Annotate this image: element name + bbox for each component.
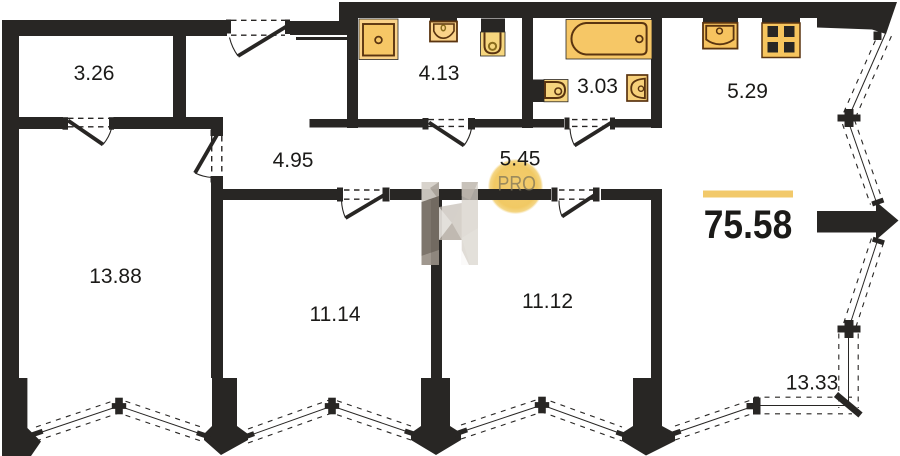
svg-text:5.45: 5.45 (500, 148, 541, 171)
svg-text:4.95: 4.95 (273, 149, 314, 172)
svg-text:13.88: 13.88 (89, 265, 142, 288)
svg-text:3.26: 3.26 (74, 62, 115, 85)
svg-text:4.13: 4.13 (419, 62, 460, 85)
svg-text:11.12: 11.12 (522, 290, 573, 313)
svg-text:11.14: 11.14 (310, 303, 361, 326)
svg-text:75.58: 75.58 (704, 203, 793, 247)
svg-text:5.29: 5.29 (727, 80, 768, 103)
svg-text:PRO: PRO (498, 173, 537, 196)
svg-text:3.03: 3.03 (577, 75, 618, 98)
svg-text:13.33: 13.33 (786, 372, 839, 395)
